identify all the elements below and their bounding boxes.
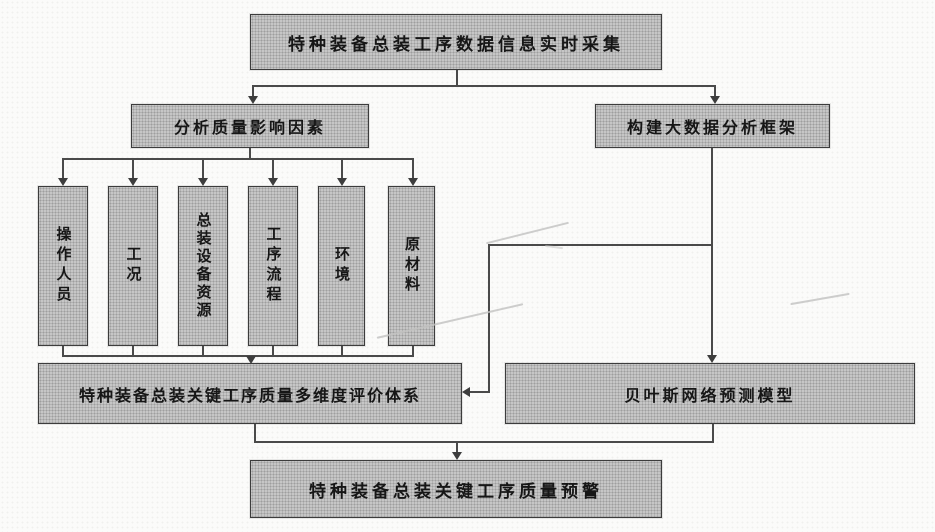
- node-label: 工况: [126, 246, 141, 286]
- connector-drop-factor-1: [62, 158, 64, 178]
- connector-factor-distribution: [62, 158, 414, 160]
- arrowhead-into-analyze: [248, 96, 258, 104]
- node-label: 分析质量影响因素: [174, 114, 326, 138]
- connector-branch-horizontal: [488, 244, 713, 246]
- arrowhead-into-factor-1: [58, 178, 68, 186]
- connector-bottom-merge: [254, 441, 714, 443]
- connector-branch-into-evaluation: [470, 391, 490, 393]
- node-quality-early-warning: 特种装备总装关键工序质量预警: [250, 460, 662, 518]
- node-label: 构建大数据分析框架: [627, 114, 798, 138]
- node-bigdata-analysis-framework: 构建大数据分析框架: [595, 104, 830, 148]
- node-label: 总装设备资源: [196, 212, 211, 320]
- factor-node-raw-materials: 原材料: [388, 186, 435, 346]
- connector-top-split: [252, 85, 716, 87]
- connector-drop-warning: [456, 441, 458, 452]
- arrowhead-into-factor-2: [128, 178, 138, 186]
- connector-drop-factor-3: [202, 158, 204, 178]
- connector-drop-factor-6: [412, 158, 414, 178]
- arrowhead-into-factor-4: [268, 178, 278, 186]
- flowchart-canvas: 特种装备总装工序数据信息实时采集 分析质量影响因素 构建大数据分析框架 操作人员…: [0, 0, 935, 532]
- arrowhead-into-factor-3: [198, 178, 208, 186]
- arrowhead-into-bayes: [707, 355, 717, 363]
- node-multidimensional-evaluation-system: 特种装备总装关键工序质量多维度评价体系: [38, 363, 462, 424]
- connector-branch-vertical: [488, 244, 490, 393]
- connector-collect-stub: [456, 70, 458, 86]
- factor-node-process-flow: 工序流程: [248, 186, 298, 346]
- arrowhead-into-factor-6: [408, 178, 418, 186]
- arrowhead-into-evaluation-side: [462, 387, 470, 397]
- factor-node-working-conditions: 工况: [108, 186, 158, 346]
- arrowhead-into-factor-5: [337, 178, 347, 186]
- scan-artifact: [790, 293, 849, 305]
- node-bayesian-network-prediction-model: 贝叶斯网络预测模型: [505, 363, 915, 424]
- node-label: 特种装备总装关键工序质量多维度评价体系: [79, 382, 421, 406]
- arrowhead-into-evaluation: [246, 356, 256, 364]
- factor-node-assembly-equipment-resources: 总装设备资源: [178, 186, 228, 346]
- node-label: 工序流程: [266, 226, 281, 306]
- connector-drop-factor-4: [272, 158, 274, 178]
- connector-framework-to-bayes: [711, 148, 713, 356]
- node-label: 原材料: [404, 236, 419, 296]
- node-label: 贝叶斯网络预测模型: [624, 382, 795, 406]
- connector-factor-collector: [62, 355, 414, 357]
- scan-artifact: [486, 222, 569, 245]
- arrowhead-into-warning: [452, 452, 462, 460]
- factor-node-operators: 操作人员: [38, 186, 88, 346]
- arrowhead-into-framework: [710, 96, 720, 104]
- node-label: 特种装备总装关键工序质量预警: [309, 477, 603, 502]
- connector-drop-factor-5: [341, 158, 343, 178]
- connector-drop-factor-2: [132, 158, 134, 178]
- node-label: 特种装备总装工序数据信息实时采集: [288, 30, 624, 55]
- node-label: 操作人员: [56, 226, 71, 306]
- node-realtime-data-collection: 特种装备总装工序数据信息实时采集: [250, 14, 662, 70]
- factor-node-environment: 环境: [318, 186, 365, 346]
- node-analyze-quality-factors: 分析质量影响因素: [131, 104, 369, 148]
- node-label: 环境: [334, 246, 349, 286]
